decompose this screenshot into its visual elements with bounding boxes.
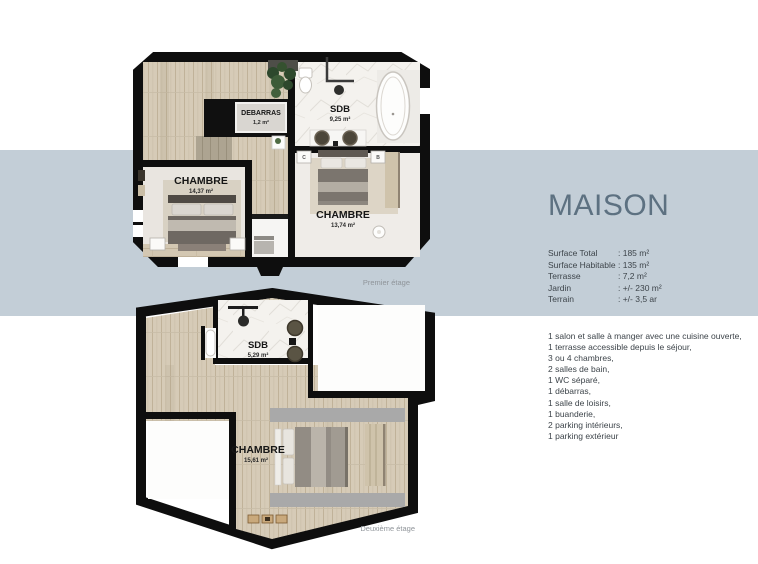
stairwell-nub [253,258,287,276]
spec-row: Terrasse : 7,2 m² [548,271,662,283]
feature-item: 2 salles de bain, [548,364,742,375]
bathtub [206,330,215,356]
spec-value: : +/- 230 m² [618,283,662,295]
spec-value: : 135 m² [618,260,649,272]
sdb-label: SDB [330,104,350,115]
spec-row: Jardin : +/- 230 m² [548,283,662,295]
spec-row: Surface Habitable : 135 m² [548,260,662,272]
spec-row: Surface Total : 185 m² [548,248,662,260]
nightstand-b-tag: B [376,155,380,161]
spec-value: : 7,2 m² [618,271,647,283]
feature-list: 1 salon et salle à manger avec une cuisi… [548,331,742,442]
double-sinks [310,130,366,146]
spec-value: : 185 m² [618,248,649,260]
spec-row: Terrain : +/- 3,5 ar [548,294,662,306]
sdb-area: 9,25 m² [330,116,351,123]
nightstand [230,238,245,250]
feature-item: 1 salle de loisirs, [548,398,742,409]
sdb2-area: 5,29 m² [248,352,269,359]
nightstand-c: C [297,151,311,163]
surface-specs: Surface Total : 185 m² Surface Habitable… [548,248,662,306]
nightstand-b: B [371,151,385,163]
feature-item: 1 WC séparé, [548,375,742,386]
chambre1-label: CHAMBRE [174,175,228,187]
feature-item: 1 buanderie, [548,409,742,420]
spec-label: Surface Habitable [548,260,618,272]
feature-item: 1 terrasse accessible depuis le séjour, [548,342,742,353]
ceiling-beam [270,408,405,422]
stairs [196,136,232,163]
bedroom-left: CHAMBRE 14,37 m² [150,175,245,251]
feature-item: 2 parking intérieurs, [548,420,742,431]
ceiling-beam [270,493,405,507]
chambre2-label: CHAMBRE [316,209,370,221]
spec-label: Terrain [548,294,618,306]
chambre2-area: 13,74 m² [331,222,355,229]
spec-value: : +/- 3,5 ar [618,294,657,306]
chambre3-label: CHAMBRE [231,444,285,456]
debarras-closet: DEBARRAS 1,2 m² [204,99,288,137]
feature-item: 1 parking extérieur [548,431,742,442]
flyer-page: DEBARRAS 1,2 m² [0,0,758,564]
floor-plan-deuxieme-etage: SDB 5,29 m² [125,286,435,550]
toilet-icon [299,68,312,93]
chambre1-area: 14,37 m² [189,188,213,195]
floor-plan-premier-etage: DEBARRAS 1,2 m² [130,48,430,294]
stool [334,85,344,95]
debarras-label: DEBARRAS [241,110,281,117]
orchid-box [272,136,285,149]
sdb2-label: SDB [248,340,268,351]
wardrobe [385,152,398,208]
feature-item: 1 salon et salle à manger avec une cuisi… [548,331,742,342]
feature-item: 1 débarras, [548,386,742,397]
spec-label: Jardin [548,283,618,295]
page-title: MAISON [548,191,669,221]
debarras-area: 1,2 m² [253,119,269,126]
chambre3-area: 15,61 m² [244,457,268,464]
laundry-room [318,305,425,391]
hobby-room [148,421,230,499]
bathtub [377,72,410,140]
storage-crates [248,515,287,523]
spec-label: Terrasse [548,271,618,283]
nightstand-c-tag: C [302,155,306,161]
spec-label: Surface Total [548,248,618,260]
feature-item: 3 ou 4 chambres, [548,353,742,364]
floor-lamp [373,226,385,238]
wardrobe [365,424,386,486]
nightstand [150,238,165,250]
floor2-caption: Deuxième étage [360,524,415,533]
